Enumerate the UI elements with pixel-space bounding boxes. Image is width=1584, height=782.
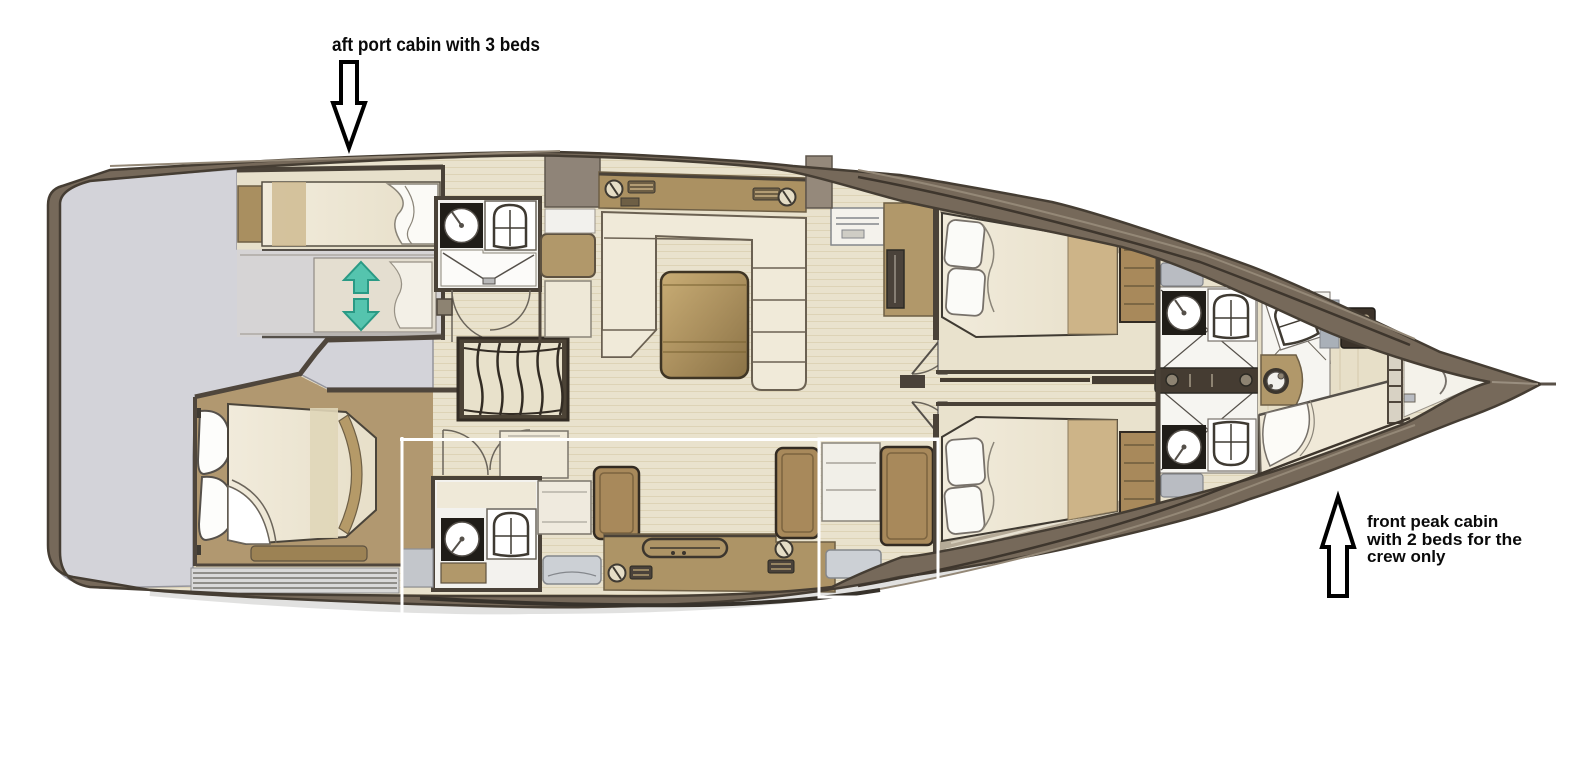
svg-text:front peak cabin: front peak cabin (1367, 512, 1498, 531)
svg-text:crew only: crew only (1367, 547, 1446, 566)
svg-text:aft port cabin with 3 beds: aft port cabin with 3 beds (332, 34, 540, 56)
